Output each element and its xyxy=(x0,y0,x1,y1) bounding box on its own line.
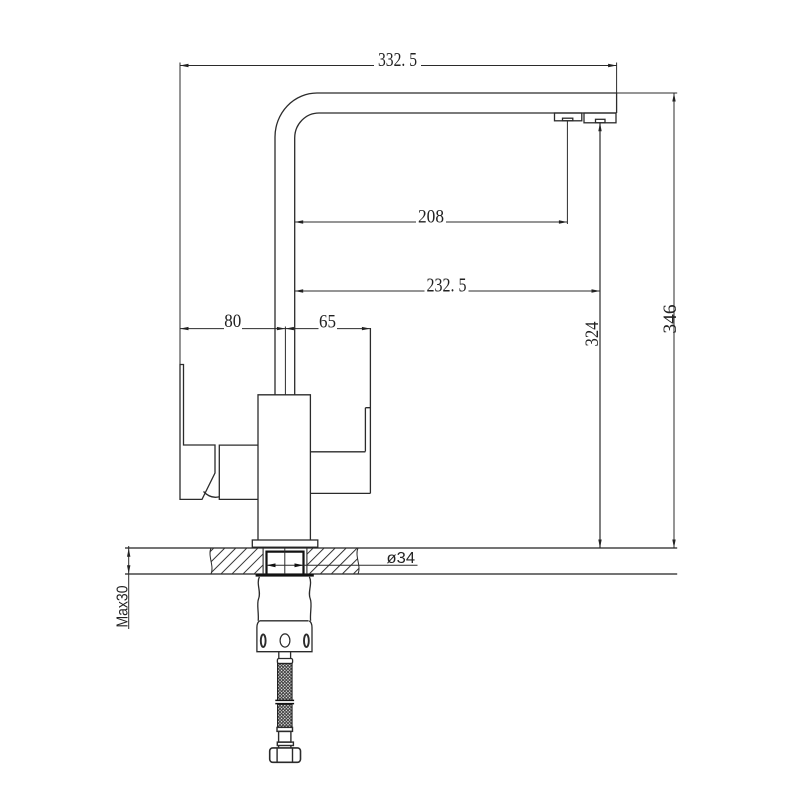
svg-text:ø34: ø34 xyxy=(387,550,416,567)
svg-text:Max30: Max30 xyxy=(114,585,131,627)
svg-text:324: 324 xyxy=(582,321,603,346)
svg-text:65: 65 xyxy=(319,312,336,333)
svg-text:208: 208 xyxy=(418,207,444,228)
svg-text:232. 5: 232. 5 xyxy=(427,275,467,297)
svg-text:80: 80 xyxy=(224,311,241,332)
svg-text:332. 5: 332. 5 xyxy=(378,49,417,71)
svg-text:346: 346 xyxy=(660,305,681,334)
